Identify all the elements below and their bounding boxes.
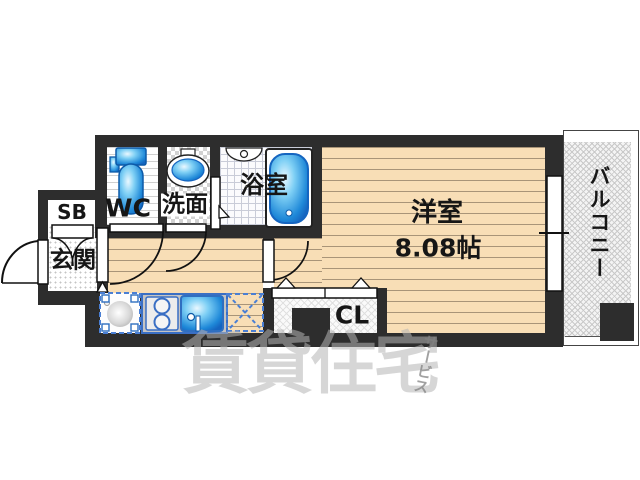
western-room-size: 8.08帖 (395, 236, 482, 261)
entrance-label: 玄関 (50, 250, 96, 273)
watermark-text: 賃貸住宅 (182, 331, 438, 398)
wc-door (110, 224, 163, 284)
toilet-label: WC (105, 196, 151, 221)
bathroom-label: 浴室 (240, 173, 288, 197)
stove-icon (146, 297, 178, 330)
closet-doors (272, 278, 377, 298)
washing-machine-icon (100, 293, 140, 333)
washbasin-icon (167, 149, 209, 187)
washroom-label: 洗面 (161, 194, 209, 217)
room-door (263, 240, 308, 282)
hall-door (97, 228, 108, 292)
entrance-door (2, 240, 48, 284)
floorplan: SB WC 洗面 浴室 玄関 CL 洋室 8.08帖 バルコニー 賃貸住宅 サー… (0, 0, 640, 480)
bath-door (211, 177, 229, 229)
closet-label: CL (335, 303, 369, 328)
balcony-label: バルコニー (588, 165, 609, 280)
washroom-door (166, 224, 206, 271)
shoe-box-label: SB (57, 202, 87, 222)
fixtures-layer (0, 0, 640, 480)
western-room-label: 洋室 (411, 200, 463, 226)
balcony-window (539, 176, 569, 291)
bath-sink-icon (226, 148, 262, 161)
